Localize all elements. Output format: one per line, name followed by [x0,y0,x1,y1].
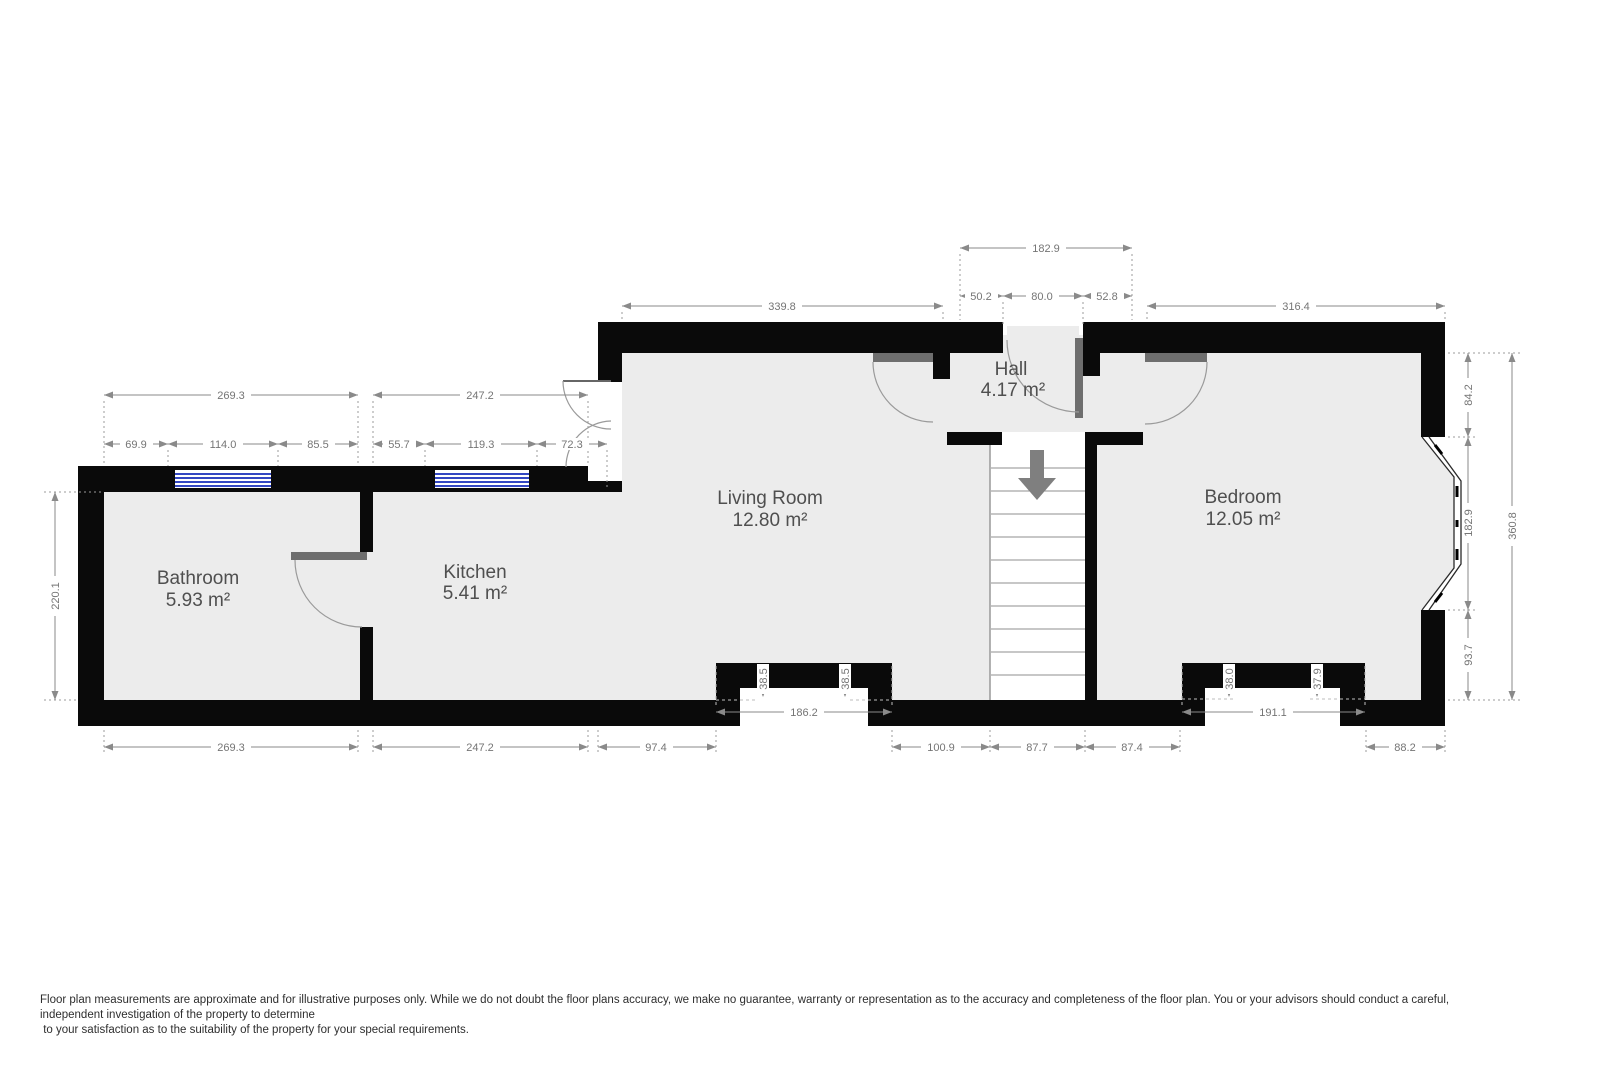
dim-hall-bottom: 87.4 [1085,741,1180,754]
bathroom-area: 5.93 m² [166,590,230,611]
svg-text:97.4: 97.4 [645,742,666,754]
wall-top-bathroom-2 [284,466,422,492]
dim-living-bottom-left: 97.4 [598,741,716,754]
svg-text:339.8: 339.8 [768,301,796,313]
wall-top-kitchen [542,466,588,492]
dim-right-bay: 182.9 [1462,437,1475,610]
staircase [990,432,1085,700]
dim-kitchen-seg-left: 55.7 [373,438,425,451]
wall-stair-stub-west [947,432,1002,445]
disclaimer-line-1: Floor plan measurements are approximate … [40,994,1449,1021]
kitchen-label: Kitchen [443,562,506,583]
window-jamb [422,466,430,492]
svg-text:247.2: 247.2 [466,742,494,754]
floor-plan-page: 182.9 50.2 80.0 52.8 339.8 316.4 [0,0,1620,1080]
svg-text:38.5: 38.5 [840,668,852,689]
svg-text:52.8: 52.8 [1096,291,1117,303]
wall-right-lower [1421,610,1445,726]
svg-text:93.7: 93.7 [1463,644,1475,665]
dim-right-lower: 93.7 [1462,610,1475,700]
bedroom-area: 12.05 m² [1206,509,1281,530]
svg-text:220.1: 220.1 [50,582,62,610]
window-jamb [276,466,284,492]
hall-label: Hall [995,359,1028,380]
kitchen-area: 5.41 m² [443,583,507,604]
dim-kitchen-window: 119.3 [425,438,537,451]
dim-right-upper: 84.2 [1462,353,1475,437]
living-room-area: 12.80 m² [733,510,808,531]
hall-area: 4.17 m² [981,380,1045,401]
dimensions-bottom: 269.3 247.2 97.4 100.9 87.7 87.4 [104,741,1445,754]
dim-bedroom-bottom: 88.2 [1366,741,1445,754]
wall-top-bedroom [1083,322,1445,353]
svg-text:114.0: 114.0 [210,439,237,451]
svg-text:85.5: 85.5 [307,439,328,451]
wall-hall-jamb-west [933,353,950,379]
svg-text:88.2: 88.2 [1394,742,1415,754]
dim-bathroom-window: 114.0 [168,438,278,451]
svg-text:269.3: 269.3 [217,742,245,754]
svg-text:186.2: 186.2 [790,707,818,719]
bathroom-label: Bathroom [157,568,239,589]
svg-text:38.0: 38.0 [1224,668,1236,689]
dim-hall-door: 80.0 [1003,290,1083,303]
dim-bathroom-top: 269.3 [104,389,358,402]
wall-kitchen-ledge [588,481,622,492]
svg-text:87.4: 87.4 [1121,742,1142,754]
window-kitchen [430,466,534,492]
dim-hall-total: 182.9 [960,242,1132,255]
dim-hall-right: 52.8 [1083,290,1132,303]
dim-living-recess-depth-right: 38.5 [839,664,852,697]
dim-living-top: 339.8 [622,300,943,313]
window-bathroom [170,466,276,492]
wall-hall-jamb-east [1083,353,1100,376]
svg-text:269.3: 269.3 [217,390,245,402]
svg-text:55.7: 55.7 [388,439,409,451]
living-room-label: Living Room [717,488,823,509]
svg-text:37.9: 37.9 [1312,668,1324,689]
dim-kitchen-bottom: 247.2 [373,741,588,754]
dim-living-bottom-right: 100.9 [892,741,990,754]
svg-text:69.9: 69.9 [125,439,146,451]
door-leaf [291,552,367,560]
door-leaf [1075,338,1083,418]
svg-text:38.5: 38.5 [758,668,770,689]
wall-left-outer [78,466,104,726]
dim-bathroom-bottom: 269.3 [104,741,358,754]
svg-text:247.2: 247.2 [466,390,494,402]
disclaimer-line-2: to your satisfaction as to the suitabili… [40,1024,469,1036]
svg-text:316.4: 316.4 [1282,301,1310,313]
svg-text:84.2: 84.2 [1463,384,1475,405]
dim-stairs-bottom: 87.7 [990,741,1085,754]
window-jamb [534,466,542,492]
dim-bedroom-top: 316.4 [1147,300,1445,313]
svg-text:72.3: 72.3 [561,439,582,451]
dim-kitchen-seg-right: 72.3 [537,438,607,451]
svg-text:360.8: 360.8 [1507,512,1519,540]
svg-text:182.9: 182.9 [1463,509,1475,537]
bedroom-label: Bedroom [1204,487,1281,508]
dim-bathroom-seg-right: 85.5 [278,438,358,451]
svg-text:119.3: 119.3 [468,439,495,451]
dim-bathroom-seg-left: 69.9 [104,438,168,451]
floor-bay [1421,437,1454,610]
dim-bedroom-recess-depth-left: 38.0 [1223,664,1236,697]
disclaimer-text: Floor plan measurements are approximate … [40,993,1498,1038]
svg-text:182.9: 182.9 [1032,243,1060,255]
door-leaf [873,353,933,362]
svg-text:100.9: 100.9 [927,742,955,754]
svg-text:50.2: 50.2 [970,291,991,303]
dim-bathroom-height: 220.1 [49,492,62,700]
wall-top-bathroom-1 [78,466,162,492]
dim-bedroom-recess-depth-right: 37.9 [1311,664,1324,697]
wall-right-upper [1421,322,1445,437]
floor-plan: 182.9 50.2 80.0 52.8 339.8 316.4 [0,0,1620,1080]
wall-divider-bath-kitchen-upper [360,492,373,552]
wall-stair-east [1085,432,1097,700]
wall-top-living [598,322,1003,353]
svg-text:80.0: 80.0 [1031,291,1052,303]
window-jamb [162,466,170,492]
wall-living-left-column [598,322,622,382]
svg-text:87.7: 87.7 [1026,742,1047,754]
dim-hall-left: 50.2 [960,290,1003,303]
dim-living-recess-depth-left: 38.5 [757,664,770,697]
door-kitchen-living [563,381,611,467]
floor-front-door-recess [1007,326,1079,353]
dim-right-total: 360.8 [1506,353,1519,700]
dim-kitchen-top: 247.2 [373,389,588,402]
wall-divider-bath-kitchen-lower [360,627,373,700]
door-leaf [1145,353,1207,362]
svg-text:191.1: 191.1 [1259,707,1287,719]
